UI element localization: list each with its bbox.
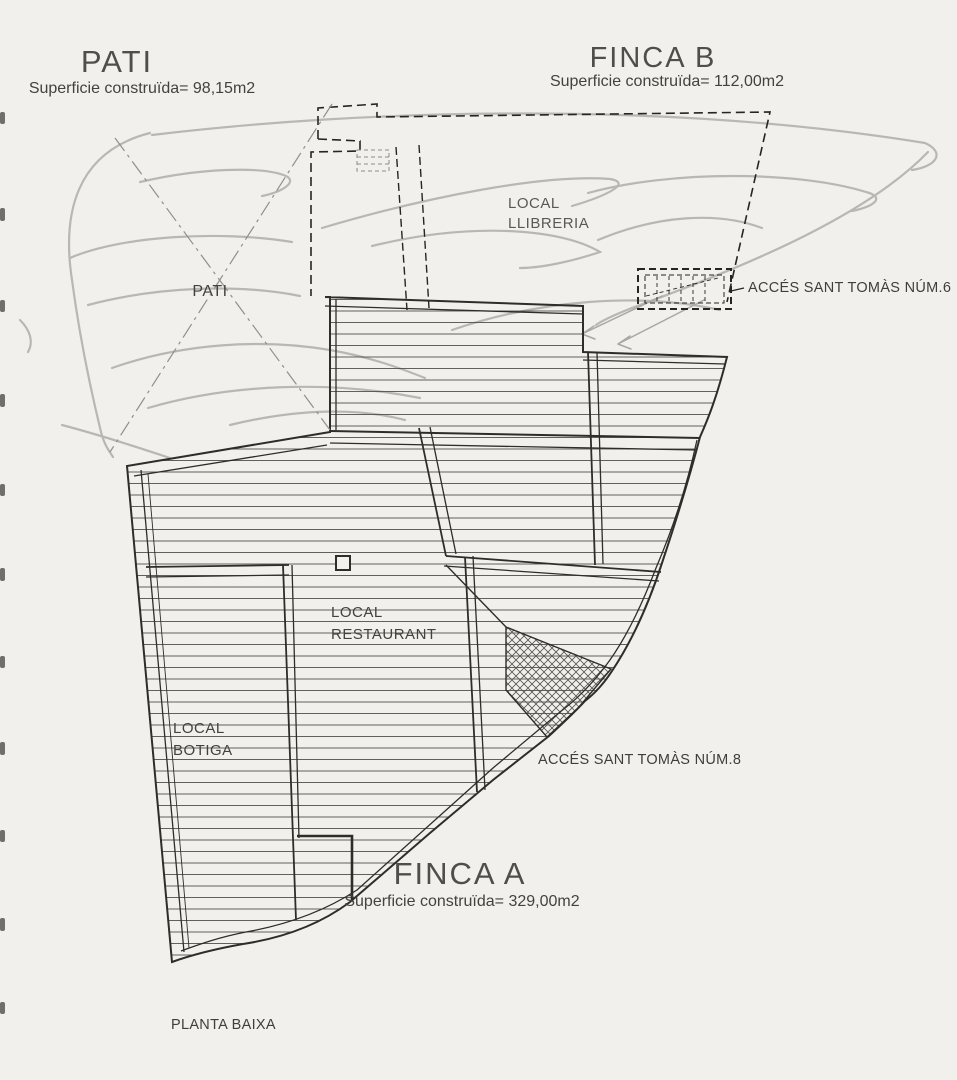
finca-b-title: FINCA B	[590, 42, 717, 74]
access-num8-label: ACCÉS SANT TOMÀS NÚM.8	[538, 751, 741, 768]
floor-plan-drawing: PATI Superficie construïda= 98,15m2 FINC…	[0, 0, 957, 1080]
room-llibreria-line1: LOCAL	[508, 195, 560, 212]
column	[336, 556, 350, 570]
finca-a-area-label: Superficie construïda= 329,00m2	[344, 893, 579, 910]
room-restaurant-line1: LOCAL	[331, 604, 383, 621]
pati-room-label: PATI	[192, 283, 227, 300]
access-num6-label: ACCÉS SANT TOMÀS NÚM.6	[748, 279, 951, 296]
room-llibreria-line2: LLIBRERIA	[508, 215, 589, 232]
floor-plan-scan: PATI Superficie construïda= 98,15m2 FINC…	[0, 0, 957, 1080]
room-restaurant-line2: RESTAURANT	[331, 626, 437, 643]
room-botiga-line1: LOCAL	[173, 720, 225, 737]
room-botiga-line2: BOTIGA	[173, 742, 233, 759]
pati-title: PATI	[81, 44, 153, 79]
pati-area-label: Superficie construïda= 98,15m2	[29, 80, 255, 97]
finca-a-title: FINCA A	[394, 856, 527, 891]
plan-type-label: PLANTA BAIXA	[171, 1017, 276, 1033]
finca-b-area-label: Superficie construïda= 112,00m2	[550, 73, 784, 90]
